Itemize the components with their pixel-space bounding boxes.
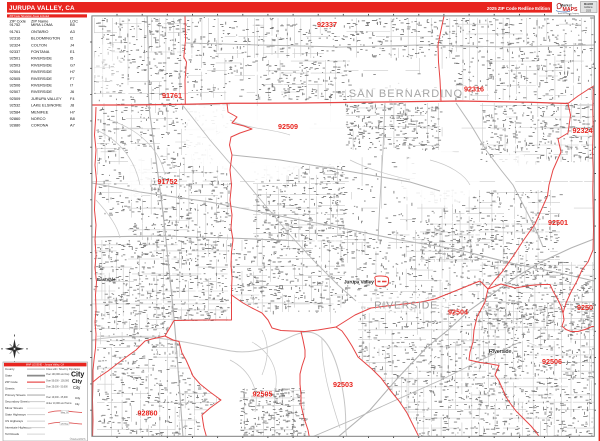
svg-text:City: City — [71, 372, 84, 379]
svg-text:92501: 92501 — [548, 218, 568, 227]
svg-text:Hwy 74: Hwy 74 — [61, 412, 69, 414]
svg-text:County: County — [5, 367, 15, 371]
svg-text:Over 25,000 - 50,000: Over 25,000 - 50,000 — [46, 386, 68, 389]
svg-text:2025: 2025 — [586, 10, 592, 12]
svg-text:92505: 92505 — [253, 390, 273, 399]
svg-text:MAJOR: MAJOR — [584, 3, 593, 6]
svg-text:Riverside,: Riverside, — [489, 349, 513, 355]
svg-text:State Highways: State Highways — [5, 413, 26, 417]
svg-text:Jurupa Valley: Jurupa Valley — [344, 280, 374, 285]
svg-text:92337: 92337 — [317, 20, 337, 29]
svg-text:Secondary Streets: Secondary Streets — [5, 400, 30, 404]
svg-text:Over 50,000 - 100,000: Over 50,000 - 100,000 — [46, 379, 70, 382]
svg-text:JURUPA VALLEY, CA: JURUPA VALLEY, CA — [9, 5, 75, 12]
svg-text:Over 10,000 - 25,000: Over 10,000 - 25,000 — [46, 396, 68, 399]
svg-text:92506: 92506 — [542, 357, 562, 366]
svg-text:92504: 92504 — [448, 308, 468, 317]
svg-text:92324: 92324 — [573, 126, 593, 135]
svg-text:Over 100,000 and Cap: Over 100,000 and Cap — [46, 373, 70, 376]
svg-text:Toll Roads: Toll Roads — [5, 432, 20, 436]
svg-text:2025 ZIP Code Redline Edition: 2025 ZIP Code Redline Edition — [487, 6, 550, 11]
svg-text:Eastvale: Eastvale — [97, 277, 116, 282]
svg-text:City: City — [75, 402, 80, 406]
svg-text:City: City — [75, 396, 81, 400]
svg-text:Editions: Editions — [584, 6, 593, 9]
svg-text:RIVERSIDE: RIVERSIDE — [374, 300, 438, 312]
svg-text:©MarketMAPS: ©MarketMAPS — [70, 438, 86, 441]
svg-text:Minor Streets: Minor Streets — [5, 406, 23, 410]
svg-text:92316: 92316 — [464, 85, 484, 94]
svg-text:92860: 92860 — [138, 409, 158, 418]
svg-text:Primary Streets: Primary Streets — [5, 393, 26, 397]
svg-text:91761: 91761 — [162, 91, 182, 100]
svg-text:US Hwy: US Hwy — [61, 423, 68, 425]
svg-text:Under 10,000 and Towns: Under 10,000 and Towns — [46, 402, 72, 405]
svg-text:ZIP Code: ZIP Code — [5, 380, 18, 384]
svg-text:MAP LEGEND - Jurupa Valley, CA: MAP LEGEND - Jurupa Valley, CA — [26, 364, 65, 367]
svg-text:91752: 91752 — [158, 177, 178, 186]
svg-text:SAN BERNARDINO: SAN BERNARDINO — [349, 88, 463, 100]
svg-text:92509: 92509 — [278, 122, 298, 131]
svg-text:92503: 92503 — [333, 380, 353, 389]
svg-text:Streets: Streets — [5, 387, 15, 391]
svg-text:City: City — [73, 385, 81, 390]
svg-text:State: State — [5, 374, 12, 378]
svg-text:US Highways: US Highways — [5, 419, 24, 423]
